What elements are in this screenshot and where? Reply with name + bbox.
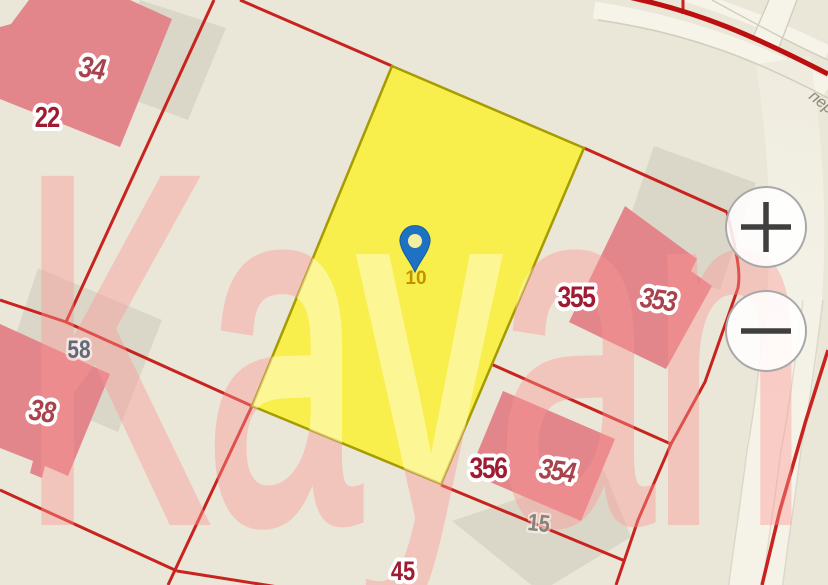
- svg-text:45: 45: [391, 557, 415, 585]
- svg-text:22: 22: [35, 101, 60, 134]
- svg-text:355: 355: [558, 280, 596, 314]
- svg-text:15: 15: [526, 508, 551, 537]
- svg-text:58: 58: [67, 335, 90, 363]
- svg-text:10: 10: [405, 268, 426, 289]
- svg-text:353: 353: [638, 281, 679, 319]
- svg-text:356: 356: [470, 451, 508, 485]
- svg-text:354: 354: [537, 452, 578, 490]
